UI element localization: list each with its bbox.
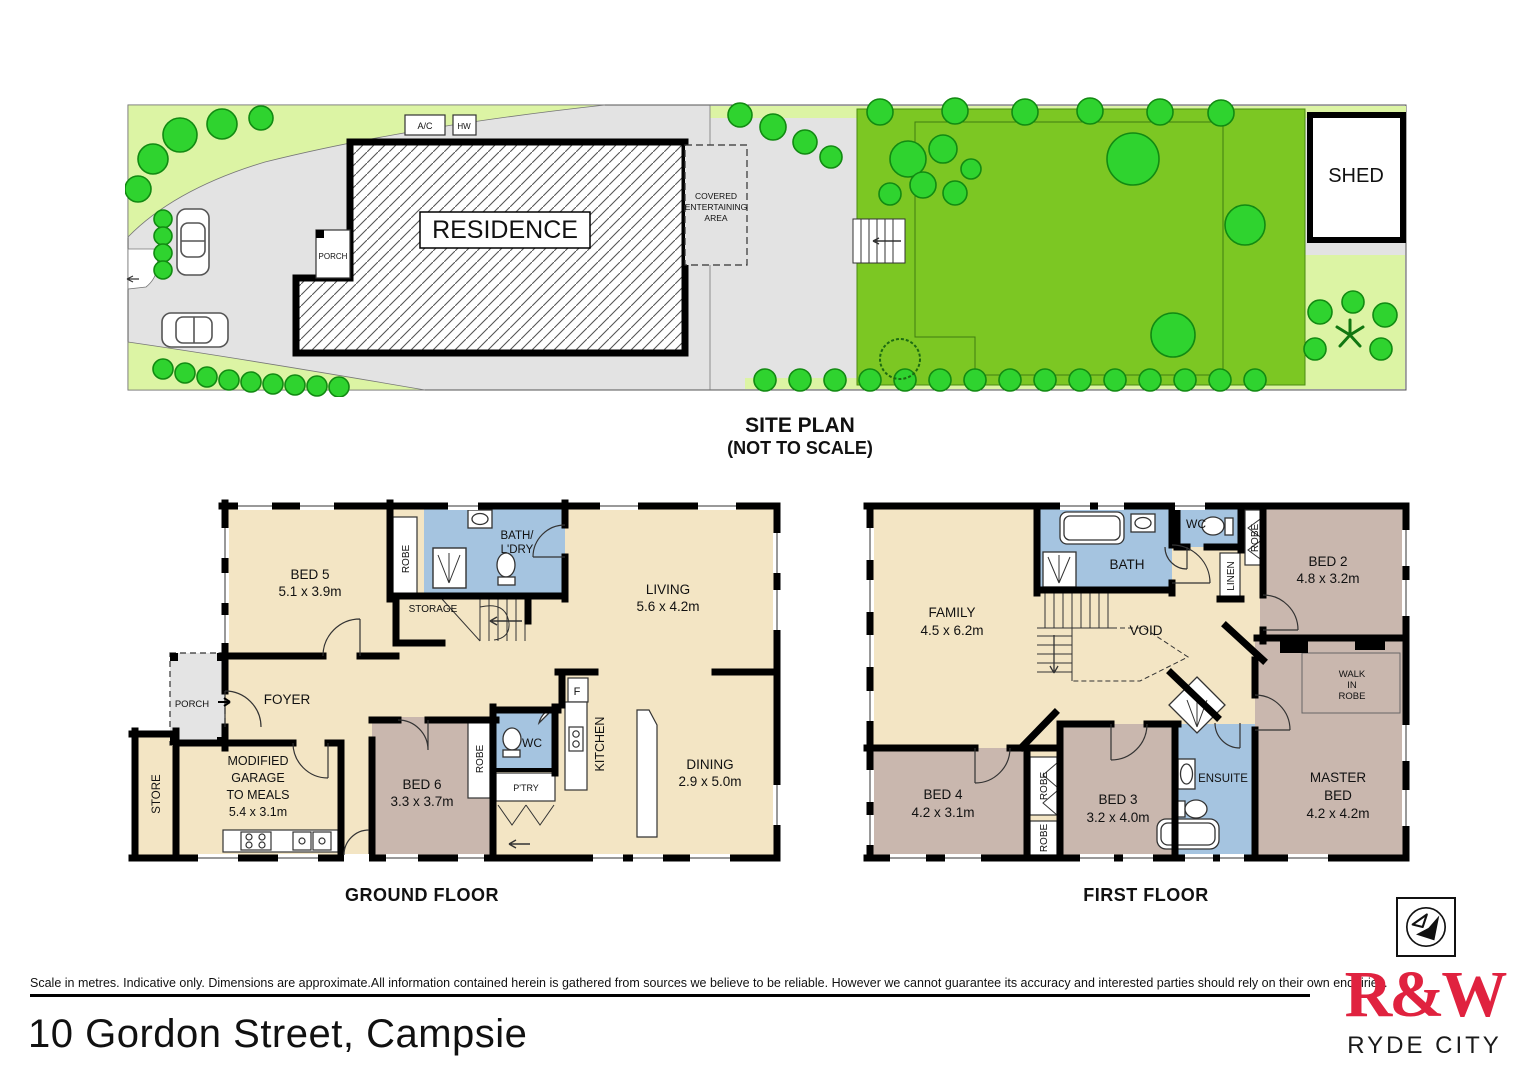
gf-garage-label-3: TO MEALS xyxy=(227,788,290,802)
gf-bed6-dims: 3.3 x 3.7m xyxy=(390,794,453,809)
ff-robe-a-label: ROBE xyxy=(1039,772,1050,801)
gf-porch-label: PORCH xyxy=(175,699,209,710)
ground-floor-plan: BED 5 5.1 x 3.9m LIVING 5.6 x 4.2m FOYER… xyxy=(128,495,798,870)
ff-master-dims: 4.2 x 4.2m xyxy=(1306,806,1369,821)
ff-ensuite-label: ENSUITE xyxy=(1198,773,1248,785)
car-1 xyxy=(177,209,209,275)
gf-bath-sink xyxy=(468,510,492,528)
gf-robe-label: ROBE xyxy=(401,545,412,574)
ff-family-label: FAMILY xyxy=(928,605,975,620)
ff-linen-label: LINEN xyxy=(1226,561,1237,590)
residence-label: RESIDENCE xyxy=(432,216,578,244)
ff-master-label-1: MASTER xyxy=(1310,770,1367,785)
ff-bath-label: BATH xyxy=(1109,557,1144,572)
brand-logo-text: R&W xyxy=(1322,962,1527,1028)
ff-bed2-dims: 4.8 x 3.2m xyxy=(1296,571,1359,586)
shed: SHED xyxy=(1310,115,1403,240)
covered-label-2: ENTERTAINING xyxy=(685,202,748,212)
gf-bath-label-1: BATH/ xyxy=(500,530,534,542)
gf-garage-bench xyxy=(223,830,338,852)
covered-label-3: AREA xyxy=(704,213,727,223)
gf-garage-dims: 5.4 x 3.1m xyxy=(229,805,287,819)
gf-garage-label-1: MODIFIED xyxy=(227,754,288,768)
gf-living-dims: 5.6 x 4.2m xyxy=(636,599,699,614)
ff-bed2-robe-label: ROBE xyxy=(1250,524,1261,553)
gf-dining-label: DINING xyxy=(686,757,733,772)
site-plan: RESIDENCE PORCH A/C HW COVERED ENTERTAIN… xyxy=(125,97,1410,397)
gf-ptry-label: P'TRY xyxy=(513,783,539,793)
ff-bed3-label: BED 3 xyxy=(1098,792,1137,807)
gf-bath-toilet xyxy=(497,553,515,585)
ff-wall-notch xyxy=(1355,635,1385,650)
ff-master-label-2: BED xyxy=(1324,788,1352,803)
brand-office-text: RYDE CITY xyxy=(1322,1032,1527,1060)
ground-floor-title: GROUND FLOOR xyxy=(272,885,572,906)
compass-icon xyxy=(1396,897,1456,957)
covered-entertaining-area: COVERED ENTERTAINING AREA xyxy=(685,145,748,265)
gf-storage-label: STORAGE xyxy=(409,604,458,615)
gf-bed6-robe-label: ROBE xyxy=(475,745,486,774)
shed-label: SHED xyxy=(1328,165,1384,187)
property-address: 10 Gordon Street, Campsie xyxy=(28,1012,527,1057)
ff-void-label: VOID xyxy=(1129,623,1162,638)
gf-kitchen-label: KITCHEN xyxy=(593,717,607,772)
site-porch-label: PORCH xyxy=(319,252,348,261)
first-floor-plan: FAMILY 4.5 x 6.2m BATH WC VOID BED 2 4.8… xyxy=(855,495,1420,870)
gf-bed5-label: BED 5 xyxy=(290,567,329,582)
ff-wir-stub xyxy=(1280,641,1308,653)
gf-wc-label: WC xyxy=(522,736,542,750)
ff-bed4 xyxy=(867,748,1027,858)
ff-bed2-label: BED 2 xyxy=(1308,554,1347,569)
gf-bed5-dims: 5.1 x 3.9m xyxy=(278,584,341,599)
ff-wc-label: WC xyxy=(1186,517,1206,531)
gf-bath-label-2: L'DRY xyxy=(501,544,534,556)
residence-building: RESIDENCE PORCH xyxy=(296,142,685,353)
ff-bed4-label: BED 4 xyxy=(923,787,963,802)
hw-label: HW xyxy=(457,122,471,131)
agency-logo xyxy=(1396,897,1456,957)
gf-foyer-label: FOYER xyxy=(264,692,311,707)
first-floor-title: FIRST FLOOR xyxy=(996,885,1296,906)
footer-rule xyxy=(30,975,1310,997)
gf-garage-label-2: GARAGE xyxy=(231,771,285,785)
site-plan-subtitle: (NOT TO SCALE) xyxy=(640,438,960,459)
gf-fridge-label: F xyxy=(574,686,581,698)
covered-label-1: COVERED xyxy=(695,191,737,201)
gf-shower xyxy=(433,548,466,588)
gf-bed6-label: BED 6 xyxy=(402,777,441,792)
garden-stairs xyxy=(853,219,905,263)
ff-family-dims: 4.5 x 6.2m xyxy=(920,623,983,638)
ac-hw-units: A/C HW xyxy=(405,115,476,135)
site-plan-title: SITE PLAN xyxy=(640,414,960,437)
gf-dining-dims: 2.9 x 5.0m xyxy=(678,774,741,789)
ff-wir-label-2: IN xyxy=(1347,680,1357,691)
ff-bed3-dims: 3.2 x 4.0m xyxy=(1086,810,1149,825)
car-2 xyxy=(162,313,228,347)
ff-wir-label-3: ROBE xyxy=(1339,691,1366,702)
ff-robe-b-label: ROBE xyxy=(1039,824,1050,853)
ff-wir-label-1: WALK xyxy=(1339,669,1366,680)
floorplan-page: RESIDENCE PORCH A/C HW COVERED ENTERTAIN… xyxy=(0,0,1534,1085)
ac-label: A/C xyxy=(417,121,433,131)
gf-living-label: LIVING xyxy=(646,582,690,597)
ff-wc-toilet xyxy=(1202,517,1233,535)
ff-bed4-dims: 4.2 x 3.1m xyxy=(911,805,974,820)
gf-store-label: STORE xyxy=(151,774,163,814)
